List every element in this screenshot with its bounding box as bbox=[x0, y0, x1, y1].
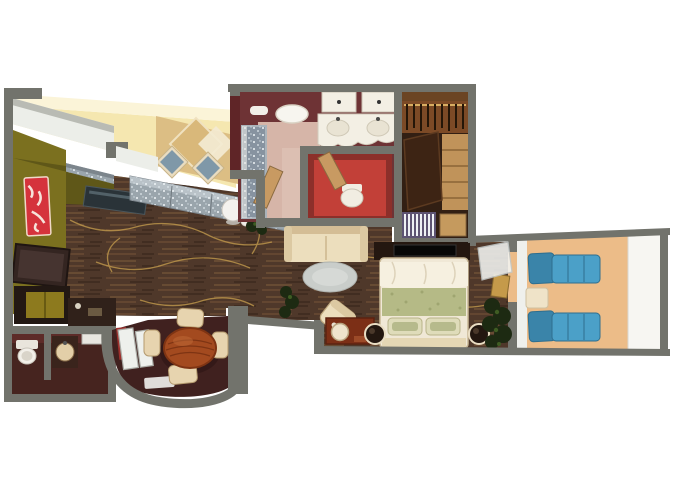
wall-lamp bbox=[250, 106, 268, 115]
bed-sage-runner bbox=[382, 288, 466, 316]
bed bbox=[380, 258, 468, 348]
balcony-side-table bbox=[526, 288, 548, 308]
desk-stool bbox=[332, 324, 349, 341]
tv-panel bbox=[12, 244, 70, 287]
oval-rug bbox=[303, 262, 357, 292]
lounger-1 bbox=[528, 253, 600, 284]
top-left-wall-stub bbox=[4, 88, 42, 99]
walk-in-closet bbox=[402, 92, 468, 238]
slatted-drawers bbox=[402, 212, 436, 238]
guest-bath-divider bbox=[44, 334, 51, 380]
closet-bin bbox=[440, 214, 466, 236]
bar-counter bbox=[68, 298, 116, 328]
guest-toilet bbox=[16, 340, 38, 364]
floor-plan-page bbox=[0, 0, 680, 486]
dining-table bbox=[164, 328, 216, 368]
loveseat bbox=[284, 226, 368, 262]
gold-door bbox=[491, 274, 510, 298]
left-wall bbox=[4, 88, 13, 328]
balcony bbox=[517, 230, 668, 354]
oval-ceiling-light bbox=[276, 105, 308, 123]
dining-bay bbox=[106, 306, 248, 404]
bay-right-wall bbox=[228, 306, 248, 394]
water-closet bbox=[308, 152, 392, 222]
nightstand-left bbox=[365, 324, 385, 344]
lounger-2 bbox=[528, 311, 600, 342]
floor-plan-rendering bbox=[0, 0, 680, 486]
guest-sink bbox=[52, 336, 78, 368]
bar-cabinet bbox=[14, 286, 70, 324]
balcony-railing bbox=[628, 234, 662, 350]
red-wall-art bbox=[24, 177, 51, 236]
guest-bathroom bbox=[4, 326, 116, 402]
wardrobe bbox=[404, 132, 442, 210]
